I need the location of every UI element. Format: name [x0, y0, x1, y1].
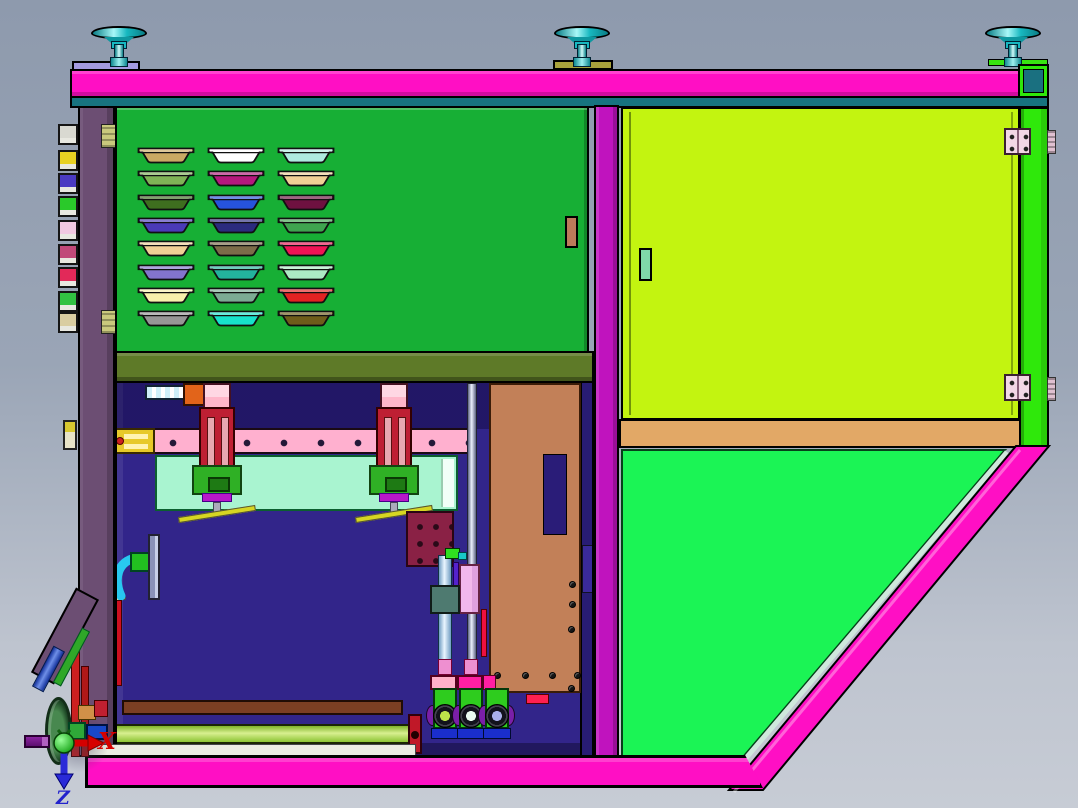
- gripper-bracket: [369, 465, 419, 495]
- left-column-clip: [58, 312, 78, 333]
- roller-base: [431, 728, 459, 739]
- left-column-clip: [58, 173, 78, 194]
- slide-unit-right: [367, 383, 421, 531]
- upper-access-door[interactable]: [621, 107, 1020, 420]
- lower-right-assembly: [594, 440, 1078, 808]
- inner-tan-panel: [489, 383, 581, 693]
- tray: [277, 147, 335, 164]
- red-tab: [526, 694, 549, 704]
- door-hinge: [1004, 128, 1031, 155]
- leveling-foot-middle: [554, 24, 610, 70]
- bolt: [568, 685, 575, 692]
- door-hinge: [1004, 374, 1031, 401]
- interior-right-block: [582, 545, 594, 593]
- red-post: [115, 600, 122, 686]
- tray: [137, 170, 195, 187]
- tray: [277, 170, 335, 187]
- slide-mount: [203, 383, 231, 409]
- tray: [277, 264, 335, 281]
- bolt: [522, 672, 529, 679]
- roller-bearing: [485, 704, 509, 728]
- left-frame-column: [78, 106, 115, 757]
- left-column-clip: [58, 291, 78, 312]
- door-handle[interactable]: [639, 248, 652, 281]
- panel-cutout: [543, 454, 567, 535]
- left-column-clip: [58, 124, 78, 145]
- conveyor-roller: [115, 724, 413, 744]
- tray: [137, 264, 195, 281]
- tray: [277, 240, 335, 257]
- left-column-clip: [58, 196, 78, 217]
- tray: [137, 240, 195, 257]
- machine-interior: [115, 381, 594, 757]
- hook-mount: [130, 552, 150, 572]
- gripper-inset: [208, 477, 230, 492]
- slide-mount: [380, 383, 408, 409]
- bolt: [568, 626, 575, 633]
- tray: [207, 310, 265, 327]
- bolt: [574, 672, 581, 679]
- leveling-foot-left: [91, 24, 147, 70]
- gripper-bracket: [192, 465, 242, 495]
- left-column-clip: [58, 150, 78, 171]
- mid-crossbeam: [115, 351, 594, 383]
- cylinder-band: [464, 659, 478, 675]
- gearbox: [430, 585, 460, 614]
- tray: [137, 217, 195, 234]
- tray: [137, 310, 195, 327]
- guide-rod: [467, 383, 477, 668]
- tray: [207, 217, 265, 234]
- lower-crossbar: [122, 700, 403, 715]
- bolt: [569, 601, 576, 608]
- gripper-inset: [385, 477, 407, 492]
- cad-viewport[interactable]: X Z: [0, 0, 1078, 808]
- tray: [207, 240, 265, 257]
- tray-grid: [117, 108, 587, 351]
- bolt: [569, 581, 576, 588]
- roller-base: [483, 728, 511, 739]
- corner-inset: [1023, 69, 1044, 93]
- side-bracket: [63, 420, 77, 450]
- roller-base: [457, 728, 485, 739]
- panel-handle[interactable]: [565, 216, 578, 248]
- bottom-frame-beam: [85, 755, 763, 788]
- hook-plate: [148, 534, 160, 600]
- top-frame-beam: [70, 69, 1020, 98]
- top-right-corner-block: [1018, 64, 1049, 98]
- left-column-clip: [58, 267, 78, 288]
- tray: [277, 217, 335, 234]
- x-axis-label: X: [96, 728, 117, 755]
- pink-slide-plate: [459, 564, 480, 614]
- left-column-clip: [58, 244, 78, 265]
- tray: [137, 194, 195, 211]
- cylinder-band: [438, 659, 452, 675]
- foot-nut: [110, 57, 128, 67]
- coordinate-triad: X Z: [0, 692, 132, 808]
- tray: [277, 287, 335, 304]
- tray: [207, 194, 265, 211]
- gripper-wedge: [379, 493, 409, 502]
- tray: [207, 264, 265, 281]
- left-column-clip: [58, 220, 78, 241]
- hinge-tab: [1047, 377, 1056, 401]
- sensor-block: [458, 552, 467, 560]
- gripper-wedge: [202, 493, 232, 502]
- tray: [207, 170, 265, 187]
- tray-magazine-panel: [115, 106, 589, 353]
- foot-nut: [573, 57, 591, 67]
- hinge-tab: [1047, 130, 1056, 154]
- slide-unit-left: [190, 383, 244, 531]
- origin-ball: [54, 733, 74, 753]
- tray: [277, 194, 335, 211]
- tray: [137, 287, 195, 304]
- tray: [207, 147, 265, 164]
- red-post: [481, 609, 487, 657]
- tray: [277, 310, 335, 327]
- bolt: [549, 672, 556, 679]
- z-axis-label: Z: [55, 787, 71, 808]
- tray: [207, 287, 265, 304]
- rail-end-bracket: [115, 428, 155, 454]
- tray: [137, 147, 195, 164]
